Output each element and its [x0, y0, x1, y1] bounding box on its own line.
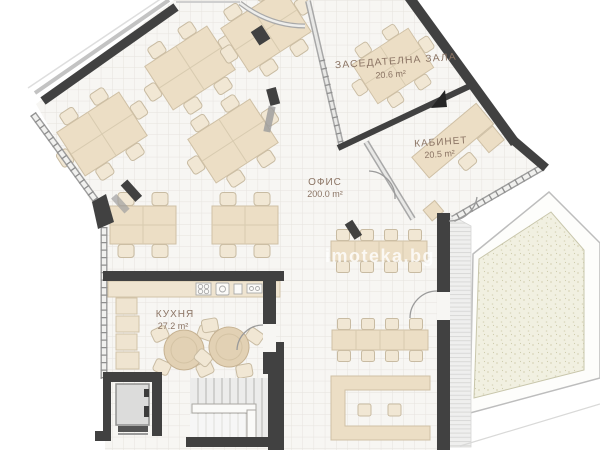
area-meeting-room: 20.6 m² — [375, 68, 406, 80]
elevator-door — [118, 426, 148, 432]
floorplan-svg: imoteka.bg ЗАСЕДАТЕЛНА ЗАЛА 20.6 m² КАБИ… — [0, 0, 600, 450]
kitchen-cabinets — [116, 298, 139, 369]
wall-right — [437, 213, 450, 450]
label-office: ОФИС — [308, 177, 342, 188]
hob-icon — [247, 284, 262, 293]
staircase — [190, 378, 270, 444]
kitchen-appliance — [234, 284, 242, 294]
terrace — [449, 192, 600, 447]
wall-kitchen-top — [103, 271, 284, 281]
area-office: 200.0 m² — [307, 189, 343, 199]
area-cabinet: 20.5 m² — [424, 148, 455, 160]
stove-icon — [196, 283, 211, 295]
sink-icon — [216, 283, 229, 295]
elevator — [116, 384, 149, 435]
label-kitchen: КУХНЯ — [156, 309, 194, 320]
terrace-decking — [449, 214, 471, 447]
stair-rail — [192, 404, 256, 413]
watermark: imoteka.bg — [325, 246, 435, 266]
floorplan-page: imoteka.bg ЗАСЕДАТЕЛНА ЗАЛА 20.6 m² КАБИ… — [0, 0, 600, 450]
area-kitchen: 27.2 m² — [158, 321, 189, 331]
